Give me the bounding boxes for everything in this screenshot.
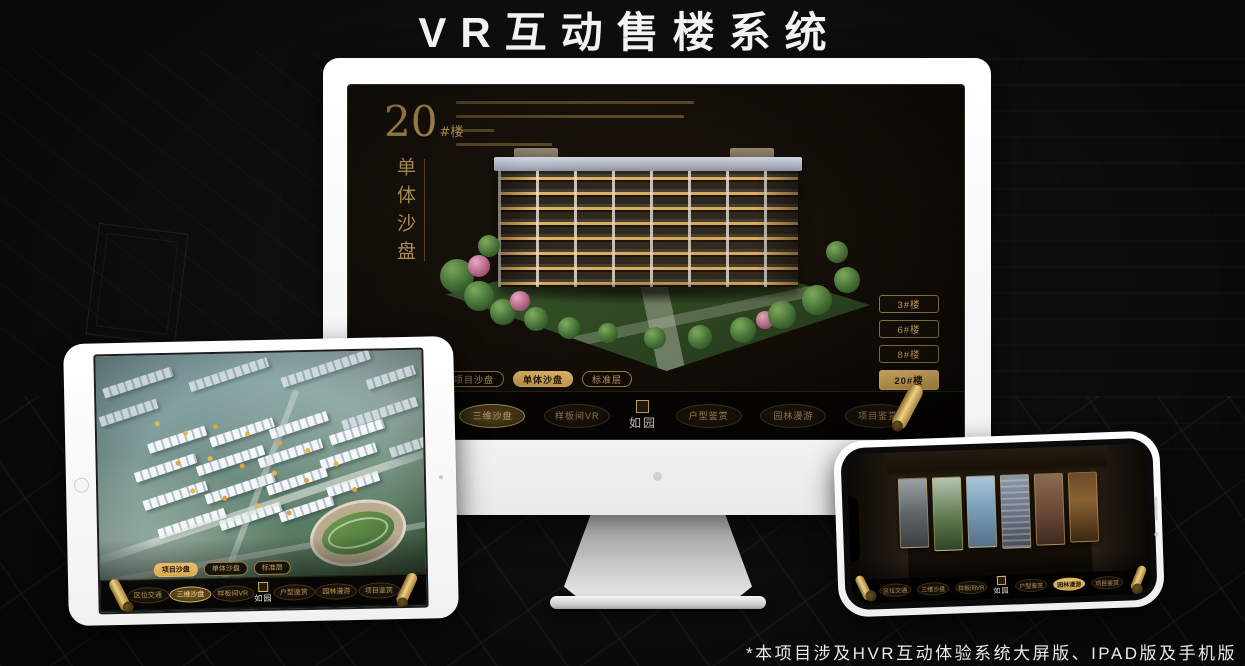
phone-nav-3d-sandbox[interactable]: 三维沙盘 [917, 581, 949, 595]
sandbox-subtabs: 项目沙盘 单体沙盘 标准层 [444, 371, 632, 387]
poster-canvas: VR互动售楼系统 20#楼 单体沙盘 [0, 0, 1245, 666]
building-number-badges [155, 421, 160, 426]
background-buildings [975, 50, 1245, 450]
tablet-camera [439, 475, 443, 479]
subtab-single-sandbox[interactable]: 单体沙盘 [513, 371, 573, 387]
tree [558, 317, 580, 339]
tablet-screen[interactable]: 项目沙盘 单体沙盘 标准层 区位交通 三维沙盘 样板间VR 如园 户型鉴赏 园林… [93, 348, 428, 615]
tree [524, 307, 548, 331]
tree [826, 241, 848, 263]
nav-item-unit-plans[interactable]: 户型鉴赏 [676, 404, 742, 428]
monitor-stand [558, 511, 758, 601]
subtab-standard-floor[interactable]: 标准层 [582, 371, 632, 387]
scene-card[interactable] [1034, 473, 1065, 546]
block-headline: 20#楼 [384, 101, 463, 143]
tablet-nav-3d-sandbox[interactable]: 三维沙盘 [169, 586, 211, 603]
tablet-nav-location[interactable]: 区位交通 [127, 586, 169, 603]
phone-brand-logo: 如园 [993, 576, 1010, 597]
model-building [494, 157, 802, 291]
tablet-subtab-standard-floor[interactable]: 标准层 [254, 560, 291, 575]
floor-button-3[interactable]: 3#楼 [879, 295, 939, 313]
phone-nav-garden-tour[interactable]: 园林漫游 [1053, 577, 1085, 591]
brand-seal-icon [258, 581, 268, 591]
scene-card[interactable] [932, 476, 964, 551]
background-picture-frame [86, 223, 189, 345]
tree [468, 255, 490, 277]
tablet-sandbox-subtabs: 项目沙盘 单体沙盘 标准层 [154, 560, 291, 577]
phone-nav-project-view[interactable]: 项目鉴赏 [1091, 575, 1123, 589]
scene-card[interactable] [898, 477, 929, 548]
phone-nav-showroom-vr[interactable]: 样板间VR [955, 580, 988, 594]
building-3d-model[interactable] [438, 143, 878, 375]
tablet-home-button[interactable] [74, 478, 89, 493]
tree [478, 235, 500, 257]
floor-button-8[interactable]: 8#楼 [879, 345, 939, 363]
tree [802, 285, 832, 315]
tree [644, 327, 666, 349]
floor-button-group: 3#楼 6#楼 8#楼 20#楼 [879, 295, 939, 390]
tablet-nav-garden-tour[interactable]: 园林漫游 [315, 583, 357, 600]
phone-camera [1154, 532, 1158, 536]
brand-seal-icon [996, 576, 1005, 585]
tablet-brand-logo: 如园 [254, 581, 272, 603]
floor-button-6[interactable]: 6#楼 [879, 320, 939, 338]
tree [464, 281, 494, 311]
nav-item-garden-tour[interactable]: 园林漫游 [760, 404, 826, 428]
nav-item-3d-sandbox[interactable]: 三维沙盘 [459, 404, 525, 428]
brand-logo: 如园 [629, 400, 657, 431]
headline-divider [424, 159, 425, 261]
phone-side-button[interactable] [1154, 496, 1158, 520]
tree [730, 317, 756, 343]
tablet-subtab-single-sandbox[interactable]: 单体沙盘 [204, 561, 248, 576]
tablet-nav-project-view[interactable]: 项目鉴赏 [358, 582, 400, 599]
block-number: 20 [384, 97, 437, 146]
monitor-logo-mark [653, 472, 662, 481]
tablet-frame: 项目沙盘 单体沙盘 标准层 区位交通 三维沙盘 样板间VR 如园 户型鉴赏 园林… [63, 336, 459, 626]
phone-nav-unit-plans[interactable]: 户型鉴赏 [1015, 578, 1047, 592]
tree [688, 325, 712, 349]
phone-screen[interactable]: 区位交通 三维沙盘 样板间VR 如园 户型鉴赏 园林漫游 项目鉴赏 [846, 444, 1151, 604]
phone-nav-location[interactable]: 区位交通 [879, 583, 911, 597]
tablet-nav-unit-plans[interactable]: 户型鉴赏 [273, 583, 315, 600]
monitor-base [550, 596, 766, 609]
scene-card[interactable] [1000, 474, 1032, 549]
tablet-subtab-project-sandbox[interactable]: 项目沙盘 [154, 562, 198, 577]
tree [510, 291, 530, 311]
scene-card[interactable] [1068, 472, 1099, 543]
scene-card[interactable] [966, 475, 997, 548]
scene-gallery [898, 472, 1099, 553]
footnote-text: *本项目涉及HVR互动体验系统大屏版、IPAD版及手机版 [746, 639, 1237, 664]
block-subtitle: 单体沙盘 [392, 157, 419, 269]
tree [598, 323, 618, 343]
phone-frame: 区位交通 三维沙盘 样板间VR 如园 户型鉴赏 园林漫游 项目鉴赏 [833, 430, 1165, 617]
tree [834, 267, 860, 293]
brand-seal-icon [636, 400, 649, 413]
tree [768, 301, 796, 329]
tablet-nav-showroom-vr[interactable]: 样板间VR [212, 585, 254, 602]
page-title: VR互动售楼系统 [0, 0, 1245, 58]
nav-item-showroom-vr[interactable]: 样板间VR [544, 404, 610, 428]
